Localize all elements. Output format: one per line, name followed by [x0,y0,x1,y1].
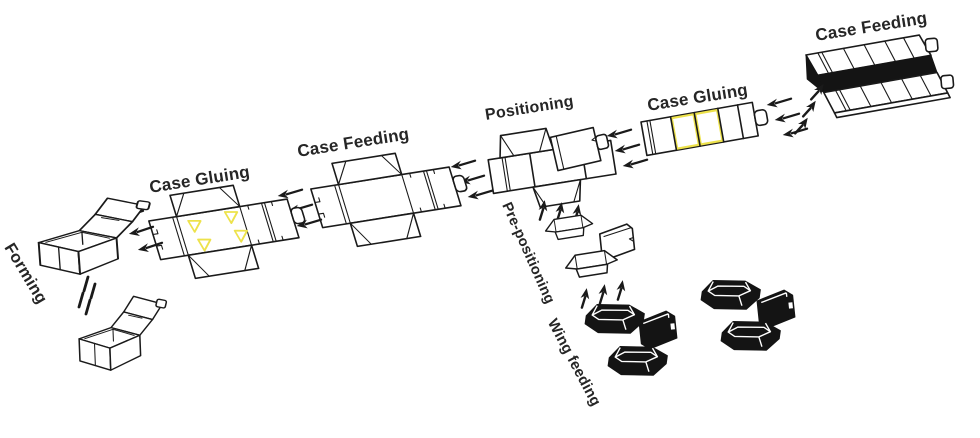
forming-transfer-dashes [79,277,95,314]
line-art [0,0,980,438]
wing-stack-right-1 [699,276,762,314]
prepos-wing-1 [544,214,594,242]
wing-stack-left-1 [583,300,646,338]
flow-arrows-1 [766,97,808,139]
stack-feed-arrows [793,81,828,136]
case-feeding-mid-blank [304,144,479,251]
positioning-blank [485,119,620,214]
wing-stack-left-2 [606,342,669,380]
diagram-canvas: Case Feeding Case Gluing Positioning Pre… [0,0,980,438]
forming-box-1 [36,197,156,276]
forming-box-2 [78,295,170,371]
